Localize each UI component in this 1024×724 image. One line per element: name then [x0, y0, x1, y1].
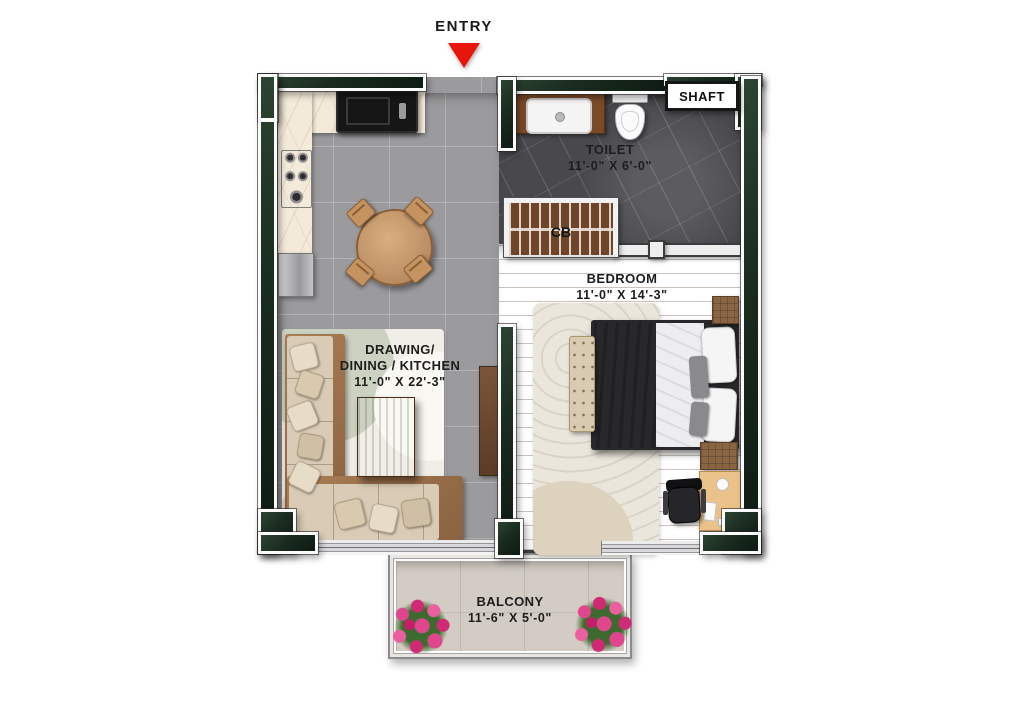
entry-label: ENTRY	[424, 18, 504, 35]
bed-throw-pillow	[689, 355, 710, 398]
balcony-label: BALCONY 11'-6" X 5'-0"	[410, 594, 610, 626]
sofa-cushion	[296, 432, 325, 461]
bed-throw-pillow	[689, 401, 710, 436]
wall-balcony-post	[495, 519, 523, 558]
office-chair-seat	[667, 486, 701, 524]
drawing-name-line2: DINING / KITCHEN	[300, 358, 500, 374]
desk-cup	[716, 478, 729, 491]
floor-plan-canvas: CB SHAFT	[0, 0, 1024, 724]
refrigerator	[278, 253, 314, 297]
entry-arrow-icon	[448, 43, 480, 68]
coffee-table	[357, 397, 415, 477]
wall-divider-top	[498, 77, 516, 151]
wall-joint	[261, 118, 274, 122]
wall-left	[258, 74, 277, 554]
office-chair-arm	[701, 489, 706, 513]
shaft-label: SHAFT	[679, 89, 725, 104]
partition-joint	[648, 240, 665, 259]
drawing-dims: 11'-0" X 22'-3"	[300, 374, 500, 390]
office-chair-arm	[663, 491, 668, 515]
toilet-vanity	[513, 92, 605, 134]
toilet-dims: 11'-0" X 6'-0"	[510, 158, 710, 174]
wall-divider-bottom	[498, 324, 516, 542]
kitchen-sink	[336, 89, 418, 133]
wall-corner-bl-h	[258, 532, 318, 554]
wardrobe-label: CB	[504, 224, 618, 240]
wall-corner-br-h	[700, 532, 761, 554]
bedroom-dims: 11'-0" X 14'-3"	[522, 287, 722, 303]
gas-hob	[281, 150, 312, 208]
toilet-name: TOILET	[510, 142, 710, 158]
balcony-name: BALCONY	[410, 594, 610, 610]
nightstand-bottom	[700, 442, 738, 470]
bed-blanket	[594, 322, 656, 448]
entry-opening-floor	[425, 77, 497, 93]
sofa-cushion	[367, 502, 399, 534]
window-drawing-room	[317, 540, 499, 555]
sofa-cushion	[400, 497, 432, 529]
wall-top-left	[258, 74, 426, 91]
bedroom-name: BEDROOM	[522, 271, 722, 287]
drawing-label: DRAWING/ DINING / KITCHEN 11'-0" X 22'-3…	[300, 342, 500, 390]
toilet-label: TOILET 11'-0" X 6'-0"	[510, 142, 710, 174]
drawing-name-line1: DRAWING/	[300, 342, 500, 358]
wall-right	[741, 76, 761, 554]
washbasin	[526, 98, 592, 134]
balcony-dims: 11'-6" X 5'-0"	[410, 610, 610, 626]
partition-toilet-bedroom	[612, 243, 742, 257]
bedroom-label: BEDROOM 11'-0" X 14'-3"	[522, 271, 722, 303]
bed-bench	[569, 336, 595, 432]
window-bedroom	[601, 541, 703, 555]
wall-top-toilet	[497, 77, 669, 94]
shaft-box: SHAFT	[665, 81, 739, 111]
